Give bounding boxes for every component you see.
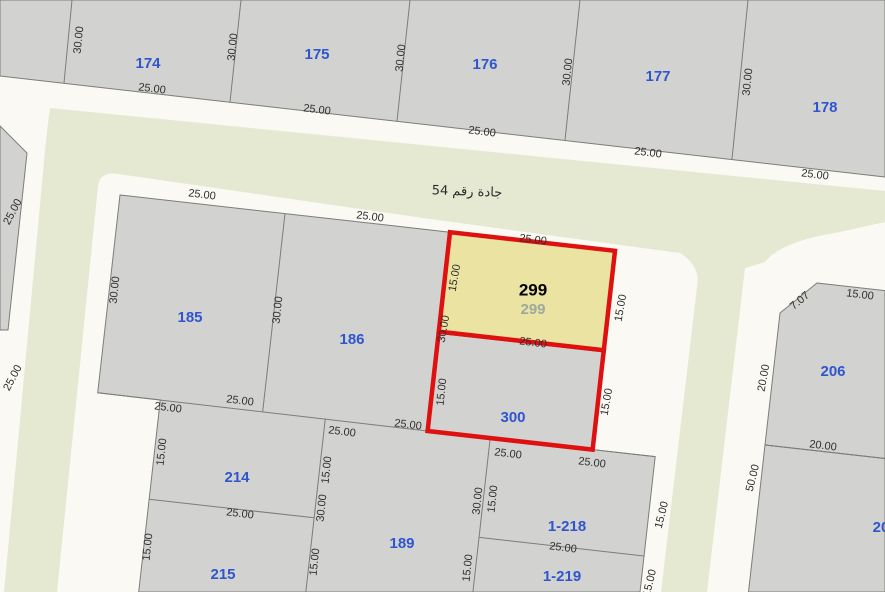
parcel-number-label-1-218: 1-218 — [548, 518, 586, 535]
parcel-number-label-20: 20 — [873, 519, 885, 536]
parcel-number-label-176: 176 — [472, 56, 497, 73]
cadastral-map-viewport[interactable]: جادة رقم 5417417517617717818518630021421… — [0, 0, 885, 592]
parcel-number-label-186: 186 — [339, 331, 364, 348]
street-name-label: جادة رقم 54 — [431, 183, 502, 200]
cadastral-map[interactable]: جادة رقم 5417417517617717818518630021421… — [0, 0, 885, 592]
parcel-number-label-1-219: 1-219 — [543, 568, 581, 585]
parcel-number-label-214: 214 — [224, 469, 250, 486]
parcel-south-of-206[interactable] — [749, 445, 885, 592]
selected-parcel-label-secondary: 299 — [520, 301, 545, 318]
parcel-number-label-206: 206 — [820, 363, 845, 380]
parcel-number-label-189: 189 — [389, 535, 414, 552]
parcel-number-label-185: 185 — [177, 309, 202, 326]
parcel-number-label-174: 174 — [135, 55, 161, 72]
parcel-number-label-178: 178 — [812, 99, 837, 116]
parcel-number-label-215: 215 — [210, 566, 235, 583]
selected-parcel-label-primary: 299 — [519, 280, 547, 299]
parcel-number-label-300: 300 — [500, 409, 525, 426]
parcel-number-label-175: 175 — [304, 46, 329, 63]
parcel-number-label-177: 177 — [645, 68, 670, 85]
